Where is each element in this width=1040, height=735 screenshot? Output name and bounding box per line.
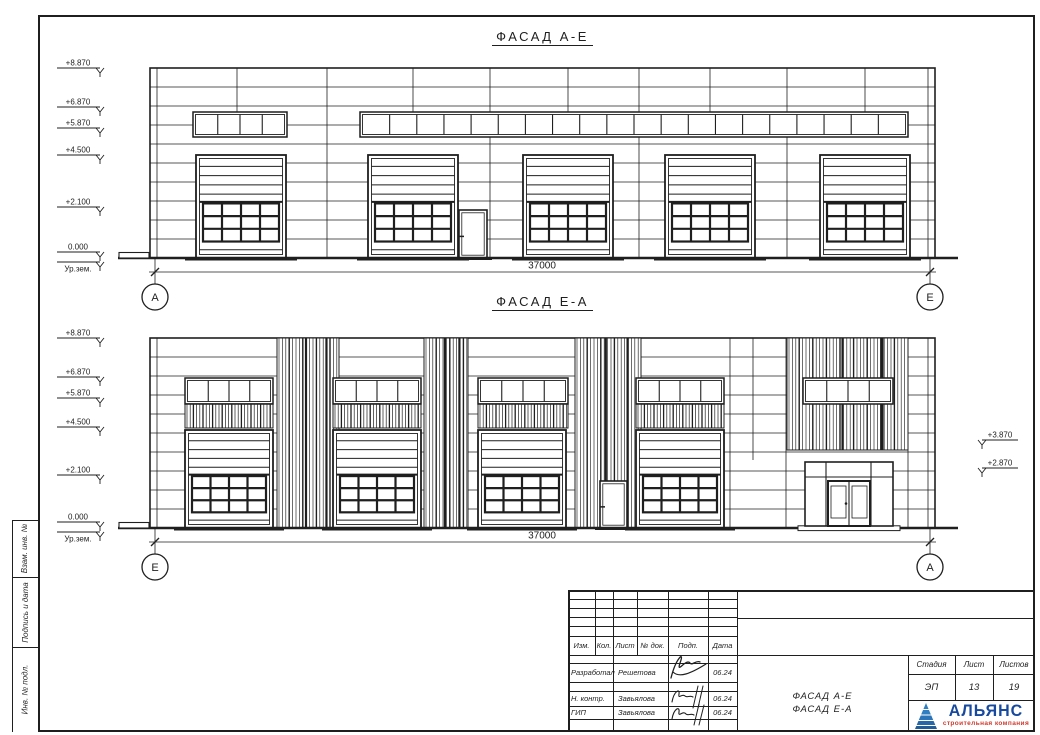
dimension-line: 37000 — [149, 258, 936, 284]
margin-box-vzam: Взам. инв. № — [12, 520, 38, 577]
stamp-grid-line — [568, 608, 737, 609]
signature-gip — [668, 702, 710, 728]
elevation-mark: 0.000 — [57, 243, 104, 262]
elevation-mark: +6.870 — [57, 98, 104, 117]
svg-text:+4.500: +4.500 — [66, 146, 91, 155]
stamp-grid-line — [568, 590, 1035, 592]
stamp-name-gip: Завьялова — [615, 706, 667, 719]
svg-text:+8.870: +8.870 — [66, 59, 91, 68]
svg-text:+6.870: +6.870 — [66, 368, 91, 377]
stamp-role-ncontrol: Н. контр. — [568, 691, 613, 706]
grid-axis-bubble: А — [917, 554, 943, 580]
svg-text:Ур.зем.: Ур.зем. — [64, 265, 91, 274]
sectional-door — [523, 155, 613, 258]
window-strip — [803, 378, 893, 404]
elevation-mark: +4.500 — [57, 146, 104, 165]
sectional-door — [196, 155, 286, 258]
stamp-grid-line — [613, 590, 614, 732]
svg-text:+2.870: +2.870 — [988, 459, 1013, 468]
stamp-date-developer: 06.24 — [708, 663, 737, 682]
elevation-mark: 0.000 — [57, 513, 104, 532]
window-strip — [333, 378, 421, 404]
stamp-header-izm: Изм. — [568, 636, 595, 655]
svg-text:+5.870: +5.870 — [66, 389, 91, 398]
stamp-header-list: Лист — [613, 636, 637, 655]
elevation-mark: +6.870 — [57, 368, 104, 387]
facade-ea-title: ФАСАД Е-А — [150, 294, 935, 311]
svg-text:Е: Е — [151, 562, 158, 574]
stamp-doc-title: ФАСАД А-Е ФАСАД Е-А — [737, 676, 908, 730]
stamp-grid-line — [568, 719, 737, 720]
elevation-mark: +5.870 — [57, 119, 104, 138]
elevation-mark: +5.870 — [57, 389, 104, 408]
personnel-door — [600, 481, 627, 528]
signature-developer — [666, 650, 710, 686]
company-logo: АЛЬЯНС строительная компания — [908, 700, 1035, 732]
facade-ae: 37000АЕ+8.870+6.870+5.870+4.500+2.1000.0… — [57, 59, 958, 311]
stamp-grid-line — [568, 682, 737, 683]
facade-ea: 37000ЕА+8.870+6.870+5.870+4.500+2.1000.0… — [57, 329, 1018, 581]
stamp-grid-line — [568, 617, 737, 618]
doc-title-line-2: ФАСАД Е-А — [793, 703, 853, 716]
svg-text:Ур.зем.: Ур.зем. — [64, 535, 91, 544]
stamp-name-developer: Решетова — [615, 663, 667, 682]
svg-text:0.000: 0.000 — [68, 243, 89, 252]
stamp-grid-line — [568, 626, 737, 627]
elevation-mark: Ур.зем. — [57, 262, 104, 274]
svg-text:37000: 37000 — [528, 531, 556, 542]
stamp-grid-line — [568, 599, 737, 600]
stamp-role-gip: ГИП — [568, 706, 613, 719]
stamp-header-data: Дата — [708, 636, 737, 655]
svg-text:+6.870: +6.870 — [66, 98, 91, 107]
window-strip — [360, 112, 908, 137]
svg-text:А: А — [926, 562, 934, 574]
stamp-sheet-value: 13 — [955, 674, 993, 700]
margin-box-podpis: Подпись и дата — [12, 577, 38, 647]
elevation-mark: +2.100 — [57, 466, 104, 485]
stamp-sheets-header: Листов — [993, 655, 1035, 674]
elevation-mark: +3.870 — [978, 431, 1018, 450]
title-block: Изм. Кол. Лист № док. Подп. Дата Разрабо… — [568, 590, 1035, 732]
personnel-door — [459, 210, 487, 258]
entrance-storefront — [798, 462, 900, 531]
sectional-door — [820, 155, 910, 258]
svg-text:+2.100: +2.100 — [66, 198, 91, 207]
doc-title-line-1: ФАСАД А-Е — [793, 690, 853, 703]
sectional-door — [478, 430, 566, 528]
svg-text:37000: 37000 — [528, 261, 556, 272]
svg-text:+3.870: +3.870 — [988, 431, 1013, 440]
elevation-mark: +4.500 — [57, 418, 104, 437]
stamp-date-gip: 06.24 — [708, 706, 737, 719]
window-strip — [478, 378, 568, 404]
svg-text:0.000: 0.000 — [68, 513, 89, 522]
facade-ae-title: ФАСАД А-Е — [150, 29, 935, 46]
window-strip — [185, 378, 273, 404]
stamp-header-doc: № док. — [637, 636, 668, 655]
sectional-door — [665, 155, 755, 258]
stamp-date-ncontrol: 06.24 — [708, 691, 737, 706]
sectional-door — [636, 430, 724, 528]
logo-pyramid-icon — [914, 702, 938, 730]
stamp-role-developer: Разработал — [568, 663, 613, 682]
stamp-sheet-header: Лист — [955, 655, 993, 674]
elevation-mark: +2.100 — [57, 198, 104, 217]
sectional-door — [368, 155, 458, 258]
window-strip — [636, 378, 724, 404]
sectional-door — [333, 430, 421, 528]
svg-text:+4.500: +4.500 — [66, 418, 91, 427]
grid-axis-bubble: Е — [142, 554, 168, 580]
stamp-stage-value: ЭП — [908, 674, 955, 700]
svg-text:+5.870: +5.870 — [66, 119, 91, 128]
elevation-mark: +8.870 — [57, 329, 104, 348]
elevation-mark: +2.870 — [978, 459, 1018, 478]
dimension-line: 37000 — [149, 528, 936, 554]
stamp-name-ncontrol: Завьялова — [615, 691, 667, 706]
stamp-sheets-value: 19 — [993, 674, 1035, 700]
drawing-sheet: 37000АЕ+8.870+6.870+5.870+4.500+2.1000.0… — [0, 0, 1040, 735]
stamp-header-kol: Кол. — [595, 636, 613, 655]
logo-name: АЛЬЯНС — [949, 704, 1023, 721]
stamp-stage-header: Стадия — [908, 655, 955, 674]
elevation-mark: +8.870 — [57, 59, 104, 78]
margin-box-inv: Инв. № подл. — [12, 647, 38, 732]
stamp-grid-line — [737, 618, 1035, 619]
elevation-mark: Ур.зем. — [57, 532, 104, 544]
window-strip — [193, 112, 287, 137]
svg-text:+8.870: +8.870 — [66, 329, 91, 338]
sectional-door — [185, 430, 273, 528]
svg-text:+2.100: +2.100 — [66, 466, 91, 475]
logo-subtitle: строительная компания — [943, 721, 1029, 728]
